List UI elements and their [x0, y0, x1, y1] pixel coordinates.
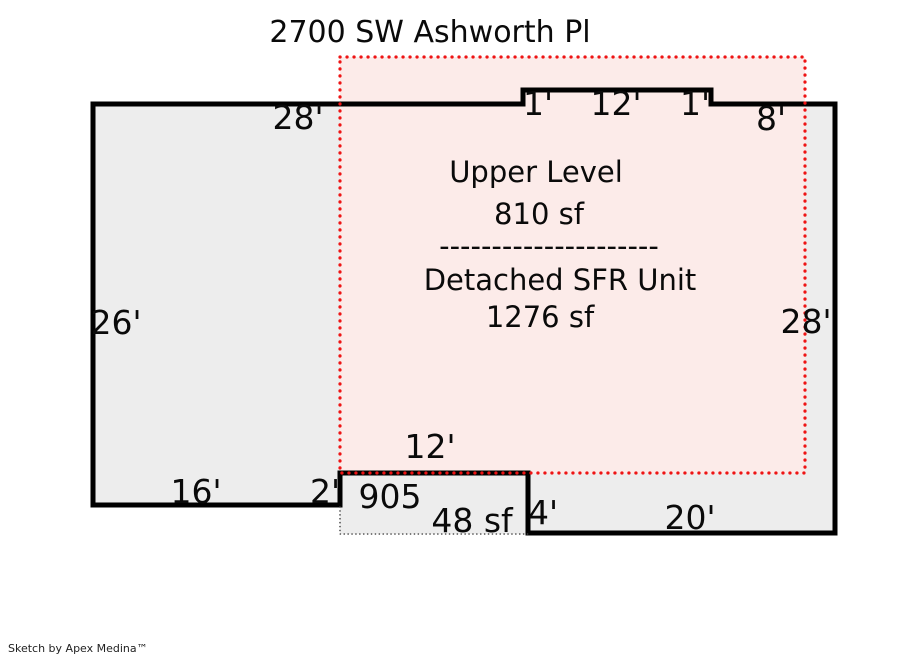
sketch-credit: Sketch by Apex Medina™	[8, 642, 148, 655]
detached-sfr-label: Detached SFR Unit	[424, 263, 697, 297]
dim-left-side: 26'	[90, 303, 141, 342]
dim-top-right: 8'	[756, 99, 786, 138]
storage-area-label: 48 sf	[431, 501, 514, 540]
dim-bottom-step: 2'	[310, 472, 340, 511]
upper-level-area: 810 sf	[494, 197, 585, 231]
dim-storage-right: 4'	[528, 493, 558, 532]
dim-notch-top: 12'	[590, 84, 641, 123]
plan-title: 2700 SW Ashworth Pl	[269, 15, 590, 50]
dim-bottom-left: 16'	[170, 472, 221, 511]
dim-notch-right: 1'	[680, 84, 710, 123]
section-divider: ---------------------	[439, 229, 659, 263]
dim-top-left: 28'	[272, 98, 323, 137]
dim-right-side: 28'	[780, 302, 831, 341]
storage-unit-number: 905	[359, 477, 422, 516]
dim-bottom-right: 20'	[664, 498, 715, 537]
dim-notch-left: 1'	[523, 84, 553, 123]
detached-sfr-area: 1276 sf	[486, 300, 595, 334]
upper-level-label: Upper Level	[449, 155, 623, 189]
floorplan-canvas: 2700 SW Ashworth Pl Sketch by Apex Medin…	[0, 0, 900, 660]
floorplan-sketch: 2700 SW Ashworth Pl Sketch by Apex Medin…	[0, 0, 900, 660]
dim-storage-top: 12'	[404, 427, 455, 466]
